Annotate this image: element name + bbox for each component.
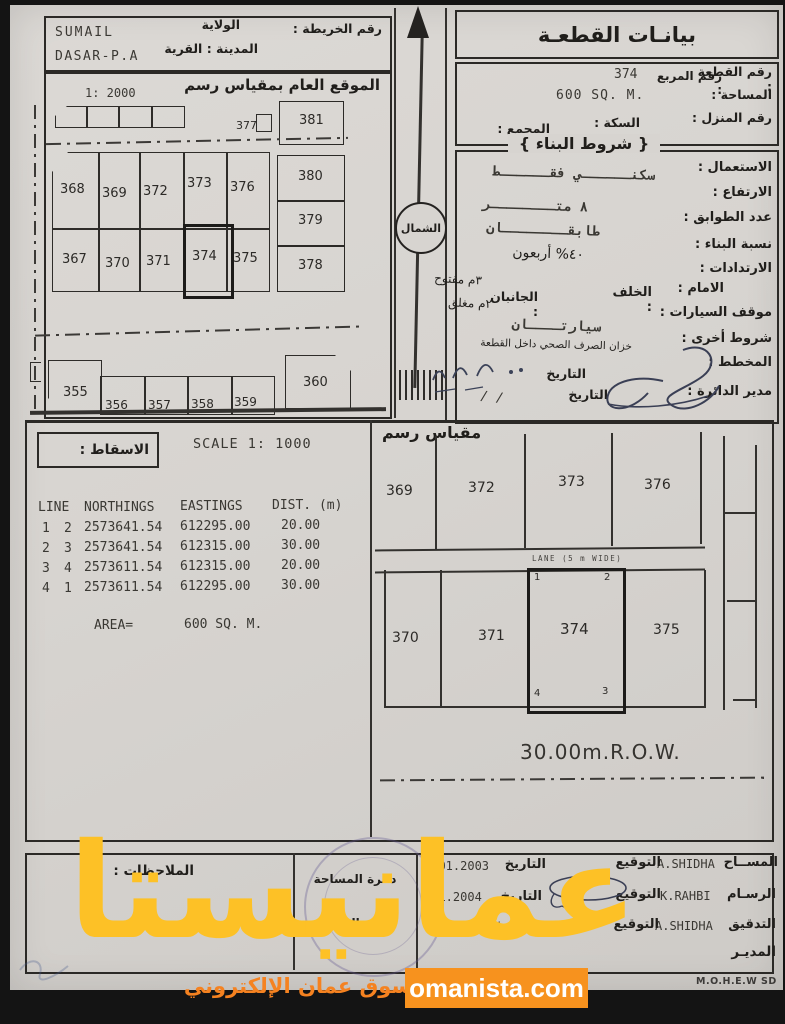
plot-data-title-box: بيانـات القطعـة <box>455 10 779 59</box>
small-lot-box <box>256 114 272 132</box>
lane-label: LANE (5 m WIDE) <box>532 554 622 563</box>
coord-cell: 4 <box>42 581 50 596</box>
coord-cell: 1 <box>64 581 72 596</box>
ratio-label: نسبة البناء : <box>682 237 772 252</box>
sides-label: الجانبان : <box>488 289 538 319</box>
detail-plot-376: 376 <box>644 477 671 493</box>
area-eq-label: AREA= <box>94 618 133 633</box>
director-signature <box>588 338 728 420</box>
small-bracket-lot <box>30 362 41 382</box>
lot-divider <box>226 153 228 229</box>
detail-map-line <box>700 432 702 544</box>
plot-label-370: 370 <box>105 256 130 271</box>
front-value: ٣م مفتوح <box>424 270 483 287</box>
lot-divider <box>151 107 153 127</box>
corner-4: 4 <box>534 688 540 699</box>
lot-divider <box>183 153 185 229</box>
plot-label-373: 373 <box>187 176 212 191</box>
coord-cell: 30.00 <box>281 538 320 553</box>
coord-cell: 612315.00 <box>180 539 250 554</box>
surveyor-role-label: المســاح <box>728 855 778 870</box>
street-label: السكة : <box>580 115 640 130</box>
town-value: DASAR-P.A <box>55 49 139 64</box>
plot-label-374: 374 <box>192 249 217 264</box>
area-label: المساحة : <box>676 87 772 102</box>
detail-map-line <box>435 436 437 550</box>
height-label: الارتفاع : <box>700 185 772 200</box>
detail-map-notch <box>723 512 756 514</box>
plot-label-375: 375 <box>233 251 258 266</box>
corner-2: 2 <box>604 572 610 583</box>
lot-divider <box>118 107 120 127</box>
plot-label-380: 380 <box>298 169 323 184</box>
coord-header-eastings: EASTINGS <box>180 499 243 514</box>
coord-header-line: LINE <box>38 500 69 515</box>
lot-divider <box>86 107 88 127</box>
plot-label-379: 379 <box>298 213 323 228</box>
checker-name: A.SHIDHA <box>655 919 713 933</box>
use-label: الاستعمال : <box>688 160 772 175</box>
coord-cell: 2 <box>64 521 72 536</box>
plot-data-title: بيانـات القطعـة <box>538 23 696 47</box>
area-value: 600 SQ. M. <box>556 88 644 103</box>
plot-label-369: 369 <box>102 186 127 201</box>
detail-map-right-line <box>723 436 725 710</box>
plot-label-371: 371 <box>146 254 171 269</box>
coord-cell: 3 <box>42 561 50 576</box>
scale-text: SCALE 1: 1000 <box>193 436 312 452</box>
detail-map-line <box>440 570 442 708</box>
highlighted-detail-plot-374 <box>527 568 626 714</box>
plot-label-368: 368 <box>60 182 85 197</box>
coord-cell: 4 <box>64 561 72 576</box>
director-role-label: المديـر <box>726 944 776 960</box>
handwritten-date-marks <box>425 352 540 397</box>
coord-cell: 3 <box>64 541 72 556</box>
coord-cell: 30.00 <box>281 578 320 593</box>
lot-divider <box>139 229 141 291</box>
detail-map-edge-line <box>755 445 757 708</box>
coord-cell: 20.00 <box>281 558 320 573</box>
plot-number-value: 374 <box>614 67 637 82</box>
overview-map-title: الموقع العام بمقياس رسم <box>160 76 380 94</box>
north-arrow-head-icon <box>407 6 429 38</box>
sides-value: ٢م مغلق <box>440 295 492 311</box>
plot-label-360: 360 <box>303 375 328 390</box>
detail-plot-374: 374 <box>560 620 589 638</box>
detail-map-line <box>524 434 526 548</box>
plot-label-359: 359 <box>234 395 257 409</box>
top-lot-strip <box>55 106 185 128</box>
plot-label-378: 378 <box>298 258 323 273</box>
detail-plot-370: 370 <box>392 630 419 646</box>
org-code: M.O.H.E.W SD <box>696 976 777 987</box>
north-label: الشمال <box>401 222 441 235</box>
house-number-label: رقم المنزل : <box>662 110 772 125</box>
omanista-watermark-text: عمانيستا <box>168 826 638 958</box>
compass-strip-left-line <box>394 8 396 418</box>
surveyor-name: A.SHIDHA <box>657 857 715 871</box>
corner-1: 1 <box>534 572 540 583</box>
area-eq-value: 600 SQ. M. <box>184 617 262 632</box>
projection-label: الاسقاط : <box>80 442 149 458</box>
detail-plot-369: 369 <box>386 483 413 499</box>
wilaya-value: SUMAIL <box>55 25 114 40</box>
lot-divider <box>139 153 141 229</box>
plot-label-367: 367 <box>62 252 87 267</box>
detail-map-notch <box>733 699 756 701</box>
coord-cell: 612295.00 <box>180 519 250 534</box>
coord-header-dist: DIST. (m) <box>272 498 342 513</box>
coord-cell: 2 <box>42 541 50 556</box>
drawing-scale-label: مقياس رسم <box>382 423 486 442</box>
checker-role-label: التدقيق <box>726 917 776 932</box>
wilaya-label: الولاية <box>178 17 240 32</box>
plan-date-label: التاريخ <box>540 366 586 381</box>
detail-plot-373: 373 <box>558 474 585 490</box>
corner-3: 3 <box>602 686 608 697</box>
detail-plot-371: 371 <box>478 628 505 644</box>
parking-label: موقف السيارات : <box>630 305 772 320</box>
plot-label-381: 381 <box>299 113 324 128</box>
omanista-site-badge: omanista.com <box>405 968 588 1008</box>
omanista-tagline: سوق عمان الإلكتروني <box>168 974 428 998</box>
plot-label-377: 377 <box>236 119 257 132</box>
floors-label: عدد الطوابق : <box>678 210 772 225</box>
plot-label-372: 372 <box>143 184 168 199</box>
draftsman-role-label: الرسـام <box>724 887 776 902</box>
coord-cell: 2573611.54 <box>84 580 162 595</box>
plot-label-355: 355 <box>63 385 88 400</box>
map-number-label: رقم الخريطة : <box>268 21 382 36</box>
survey-panel-divider <box>370 420 372 837</box>
building-conditions-header: { شروط البناء } <box>508 134 660 153</box>
draftsman-name: K.RAHBI <box>660 889 711 903</box>
coord-cell: 20.00 <box>281 518 320 533</box>
detail-map-line <box>611 433 613 546</box>
lot-divider <box>98 229 100 291</box>
coord-header-northings: NORTHINGS <box>84 500 154 515</box>
plot-label-376: 376 <box>230 180 255 195</box>
lot-divider <box>144 377 146 414</box>
lot-divider <box>98 153 100 229</box>
projection-box: الاسقاط : <box>37 432 159 468</box>
setback-label: الارتدادات : <box>686 261 772 276</box>
overview-scale: 1: 2000 <box>85 86 136 100</box>
coord-cell: 2573611.54 <box>84 560 162 575</box>
detail-map-line <box>704 570 706 708</box>
coord-cell: 612315.00 <box>180 559 250 574</box>
scanned-land-survey-document: رقم الخريطة : الولاية SUMAIL المدينة : ا… <box>0 0 785 1024</box>
coord-cell: 612295.00 <box>180 579 250 594</box>
row-width-label: 30.00m.R.O.W. <box>520 740 681 764</box>
detail-map-line <box>384 570 386 708</box>
detail-map-notch <box>727 600 756 602</box>
detail-plot-375: 375 <box>653 622 680 638</box>
town-label: المدينة : القرية <box>132 41 258 56</box>
front-label: الامام : <box>672 281 724 296</box>
coord-cell: 1 <box>42 521 50 536</box>
coord-cell: 2573641.54 <box>84 540 162 555</box>
coord-cell: 2573641.54 <box>84 520 162 535</box>
detail-plot-372: 372 <box>468 480 495 496</box>
